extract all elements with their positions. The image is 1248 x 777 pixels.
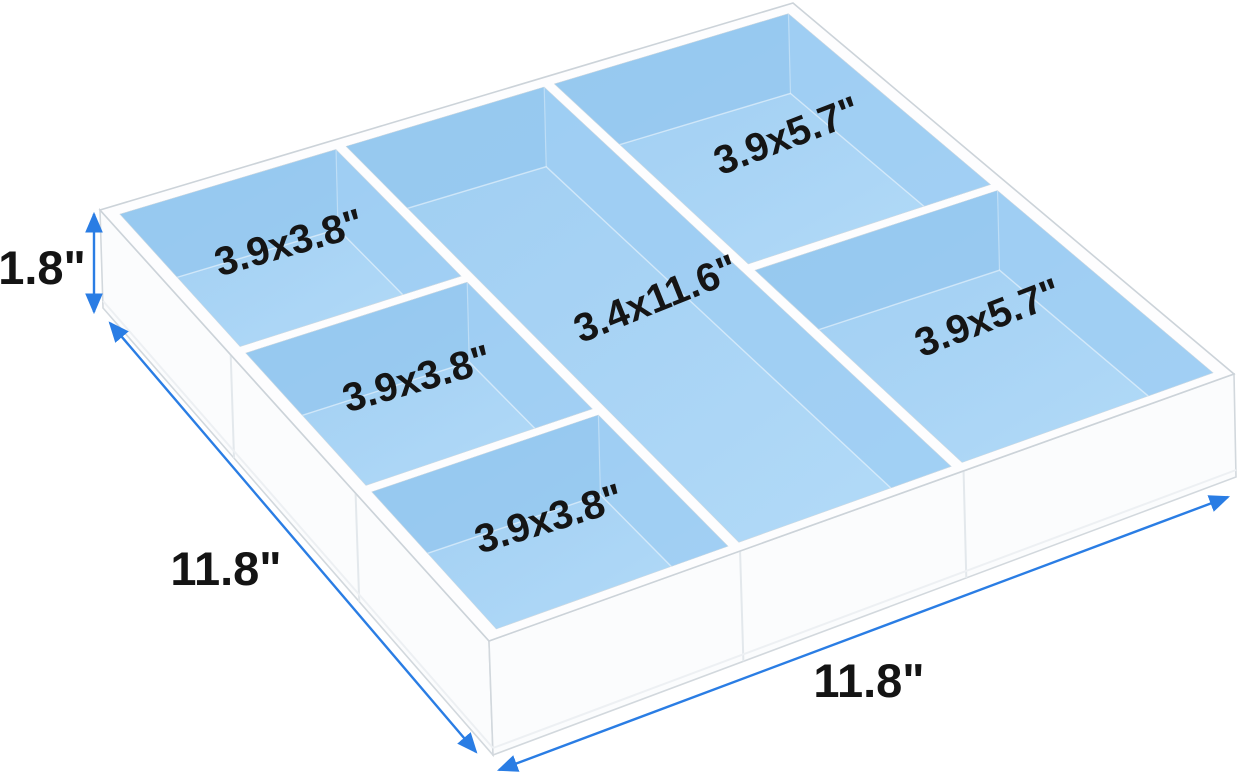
acrylic-tray-3d xyxy=(100,3,1236,755)
bottom-width-dimension-label: 11.8" xyxy=(813,654,924,707)
left-width-dimension-label: 11.8" xyxy=(170,542,281,595)
diagram-canvas: 3.9x3.8" 3.9x3.8" 3.9x3.8" 3.4x11.6" 3.9… xyxy=(0,0,1248,777)
height-dimension-label: 1.8" xyxy=(0,241,86,294)
product-dimension-diagram: 3.9x3.8" 3.9x3.8" 3.9x3.8" 3.4x11.6" 3.9… xyxy=(0,0,1248,777)
